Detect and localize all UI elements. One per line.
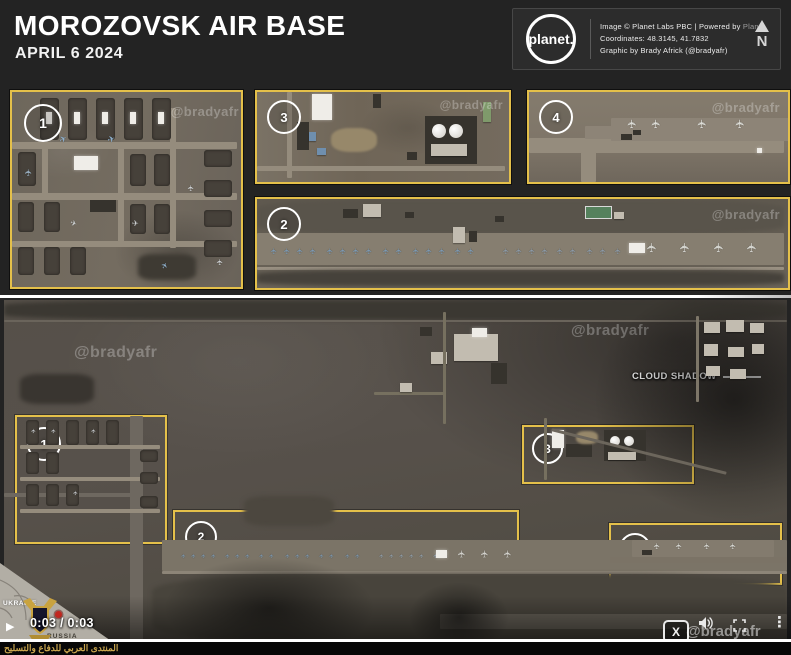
sat-feature-pen: [204, 210, 232, 227]
sat-feature-pen: [18, 202, 34, 232]
sat-feature-bld: [706, 366, 720, 376]
sat-feature-road: [581, 152, 596, 182]
sat-feature-tank: [432, 124, 446, 138]
aircraft-icon: ✈: [339, 248, 347, 255]
sat-feature-bld: [752, 344, 764, 354]
sat-feature-bldd: [633, 130, 641, 135]
aircraft-icon: ✈: [309, 248, 317, 255]
aircraft-icon: ✈: [458, 550, 468, 558]
aircraft-icon: ✈: [270, 248, 278, 255]
panel-badge-1: 1: [24, 104, 62, 142]
sat-feature-bldd: [425, 116, 477, 164]
sat-feature-road: [610, 557, 787, 563]
sat-feature-bldw: [312, 94, 332, 120]
aircraft-icon: ✈: [382, 248, 390, 255]
video-frame: MOROZOVSK AIR BASE APRIL 6 2024 planet. …: [0, 0, 791, 655]
sat-feature-pen: [44, 247, 60, 275]
sat-feature-pen: [204, 180, 232, 197]
watermark: @bradyafr: [712, 100, 780, 115]
sat-feature-bld: [726, 320, 744, 332]
sat-feature-bldd: [297, 122, 309, 150]
sat-feature-pen: [44, 202, 60, 232]
aircraft-icon: ✈: [502, 248, 510, 255]
aircraft-icon: ✈: [352, 248, 360, 255]
aircraft-icon: ✈: [746, 242, 759, 253]
aircraft-icon: ✈: [412, 248, 420, 255]
aircraft-icon: ✈: [650, 119, 662, 129]
sat-feature-field: [20, 374, 94, 404]
sat-feature-bld: [453, 227, 465, 243]
sat-feature-road: [544, 418, 547, 480]
panel-badge-4: 4: [539, 100, 573, 134]
aircraft-icon: ✈: [528, 248, 536, 255]
sat-feature-bld: [431, 144, 467, 156]
sat-feature-pen: [140, 472, 158, 484]
main-satellite-image: @bradyafr @bradyafr @bradyafr 1 2 3 4 CL…: [4, 300, 787, 643]
inset-panel-3: 3 @bradyafr: [255, 90, 511, 184]
sat-feature-road: [20, 445, 160, 449]
sat-feature-green: [585, 206, 612, 219]
sat-feature-bldw: [74, 112, 80, 124]
sat-feature-bld: [608, 452, 636, 460]
sat-feature-dirt: [331, 128, 377, 152]
bottom-bar: المنتدى العربي للدفاع والتسليح: [0, 642, 791, 655]
aircraft-icon: ✈: [420, 553, 426, 558]
sat-feature-bld: [317, 148, 326, 155]
playback-time: 0:03 / 0:03: [30, 616, 94, 630]
aircraft-icon: ✈: [296, 248, 304, 255]
sat-feature-bldw: [102, 112, 108, 124]
sat-feature-bldw: [629, 243, 645, 253]
credit-line-1: Image © Planet Labs PBC | Powered by Pla…: [600, 21, 765, 33]
sat-feature-field: [257, 270, 784, 286]
sat-feature-road: [42, 142, 48, 197]
sat-feature-pen: [18, 247, 34, 275]
speaker-icon[interactable]: [698, 616, 714, 630]
sat-feature-shadow: [409, 582, 509, 643]
aircraft-icon: ✈: [713, 242, 726, 253]
aircraft-icon: ✈: [481, 550, 491, 558]
sat-feature-bld: [750, 323, 764, 333]
sat-feature-bldd: [566, 444, 592, 457]
aircraft-icon: ✈: [626, 119, 638, 129]
sat-feature-bldw: [757, 148, 762, 153]
sat-feature-pen: [26, 484, 39, 506]
aircraft-icon: ✈: [556, 248, 564, 255]
satellite-image: ✈✈✈✈✈✈✈✈✈✈✈✈✈✈✈✈✈✈✈✈✈✈✈✈✈✈✈✈: [257, 199, 788, 288]
aircraft-icon: ✈: [703, 543, 711, 550]
sat-feature-pen: [154, 154, 170, 186]
aircraft-icon: ✈: [132, 220, 139, 228]
sat-feature-bldd: [420, 327, 432, 336]
sat-feature-pen: [154, 204, 170, 234]
sat-feature-pen: [70, 247, 86, 275]
sat-feature-road: [20, 477, 160, 481]
aircraft-icon: ✈: [326, 248, 334, 255]
aircraft-icon: ✈: [69, 219, 78, 229]
aircraft-icon: ✈: [187, 185, 195, 192]
aircraft-icon: ✈: [395, 248, 403, 255]
sat-feature-bld: [454, 334, 498, 361]
aircraft-icon: ✈: [675, 543, 683, 550]
sat-feature-bldw: [74, 156, 98, 170]
sat-feature-bld: [704, 344, 718, 356]
watermark: @bradyafr: [171, 104, 239, 119]
aircraft-icon: ✈: [92, 428, 98, 433]
bottom-bar-text: المنتدى العربي للدفاع والتسليح: [4, 643, 118, 654]
sat-feature-bldd: [407, 152, 417, 160]
sat-feature-bldw: [436, 550, 447, 558]
aircraft-icon: ✈: [599, 248, 607, 255]
north-arrow-icon: N: [755, 20, 769, 49]
aircraft-icon: ✈: [380, 553, 386, 558]
kebab-menu-icon[interactable]: ⋮: [772, 615, 787, 630]
sat-feature-pen: [140, 450, 158, 462]
aircraft-icon: ✈: [696, 119, 708, 129]
aircraft-icon: ✈: [425, 248, 433, 255]
credit-box: planet. Image © Planet Labs PBC | Powere…: [512, 8, 781, 70]
sat-feature-pen: [46, 484, 59, 506]
aircraft-icon: ✈: [569, 248, 577, 255]
aircraft-icon: ✈: [467, 248, 475, 255]
sat-feature-bldd: [469, 231, 477, 242]
aircraft-icon: ✈: [365, 248, 373, 255]
sat-feature-pen: [66, 420, 79, 445]
sat-feature-pen: [130, 154, 146, 186]
aircraft-icon: ✈: [454, 248, 462, 255]
credit-line-2: Coordinates: 48.3145, 41.7832: [600, 33, 765, 45]
sat-feature-bldd: [491, 363, 507, 384]
watermark: @bradyafr: [74, 344, 157, 362]
sat-feature-road: [374, 392, 446, 395]
planet-logo: planet.: [526, 14, 576, 64]
sat-feature-bld: [730, 369, 746, 379]
aircraft-icon: ✈: [74, 490, 80, 495]
aircraft-icon: ✈: [410, 553, 416, 558]
inset-panel-1: ✈✈✈✈✈✈✈✈ 1 @bradyafr: [10, 90, 243, 289]
sat-feature-bldd: [343, 209, 358, 218]
sat-feature-bldd: [495, 216, 504, 222]
sat-feature-field: [257, 199, 784, 235]
sat-feature-bld: [400, 383, 412, 392]
divider: [590, 19, 591, 59]
sat-feature-pen: [106, 420, 119, 445]
aircraft-icon: ✈: [734, 119, 746, 129]
sat-feature-bldw: [158, 112, 164, 124]
sat-feature-pen: [204, 150, 232, 167]
watermark: @bradyafr: [440, 98, 503, 112]
frame-separator: [0, 295, 791, 298]
aircraft-icon: ✈: [515, 248, 523, 255]
sat-feature-tank: [624, 436, 634, 446]
sat-feature-pen: [26, 452, 39, 474]
aircraft-icon: ✈: [646, 242, 659, 253]
aircraft-icon: ✈: [283, 248, 291, 255]
sat-feature-pen: [46, 452, 59, 474]
panel-badge-3: 3: [267, 100, 301, 134]
fullscreen-icon[interactable]: [733, 619, 746, 632]
aircraft-icon: ✈: [586, 248, 594, 255]
aircraft-icon: ✈: [614, 248, 622, 255]
sat-feature-road: [20, 509, 160, 513]
aircraft-icon: ✈: [390, 553, 396, 558]
aircraft-icon: ✈: [541, 248, 549, 255]
credit-text: Image © Planet Labs PBC | Powered by Pla…: [600, 21, 765, 57]
sat-feature-pen: [204, 240, 232, 257]
sat-feature-road: [118, 142, 124, 242]
credit-line-3: Graphic by Brady Africk (@bradyafr): [600, 45, 765, 57]
aircraft-icon: ✈: [729, 543, 737, 550]
sat-feature-bldd: [405, 212, 414, 218]
sat-feature-road: [696, 316, 699, 402]
sat-feature-tank: [449, 124, 463, 138]
aircraft-icon: ✈: [32, 428, 38, 433]
sat-feature-bldd: [90, 200, 116, 212]
sat-feature-road: [443, 312, 446, 424]
sat-feature-bld: [728, 347, 744, 357]
sat-feature-bldd: [642, 550, 652, 555]
aircraft-icon: ✈: [216, 259, 224, 266]
sat-feature-pad: [585, 126, 613, 139]
aircraft-icon: ✈: [400, 553, 406, 558]
sat-feature-field: [244, 496, 334, 526]
sat-feature-pen: [140, 496, 158, 508]
aircraft-icon: ✈: [438, 248, 446, 255]
watermark: @bradyafr: [712, 207, 780, 222]
aircraft-icon: ✈: [504, 550, 514, 558]
sat-feature-bld: [363, 204, 381, 217]
sat-feature-bld: [614, 212, 624, 219]
panel-badge-2: 2: [267, 207, 301, 241]
aircraft-icon: ✈: [25, 169, 34, 177]
page-date: APRIL 6 2024: [15, 45, 123, 63]
page-title: MOROZOVSK AIR BASE: [14, 10, 345, 42]
sat-feature-shadow: [164, 558, 374, 643]
sat-feature-bldw: [130, 112, 136, 124]
sat-feature-bldd: [621, 134, 632, 140]
inset-panel-2: ✈✈✈✈✈✈✈✈✈✈✈✈✈✈✈✈✈✈✈✈✈✈✈✈✈✈✈✈ 2 @bradyafr: [255, 197, 790, 290]
aircraft-icon: ✈: [679, 242, 692, 253]
play-icon[interactable]: ▶: [6, 620, 14, 633]
sat-feature-bld: [309, 132, 316, 141]
sat-feature-bld: [704, 322, 720, 333]
inset-panel-4: ✈✈✈✈ 4 @bradyafr: [527, 90, 790, 184]
aircraft-icon: ✈: [52, 428, 58, 433]
sat-feature-bldw: [472, 328, 487, 337]
sat-feature-road: [257, 166, 505, 171]
aircraft-icon: ✈: [653, 543, 661, 550]
sat-feature-bldd: [373, 94, 381, 108]
sat-feature-shadow: [594, 300, 787, 520]
